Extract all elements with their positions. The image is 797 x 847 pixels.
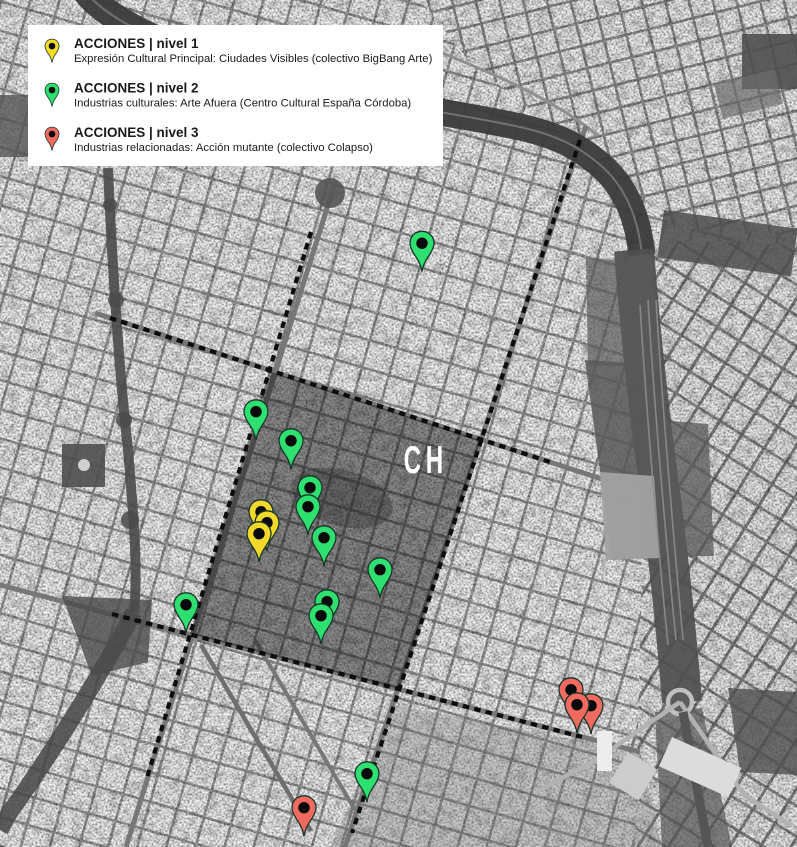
svg-text:ACCIONES | nivel 2: ACCIONES | nivel 2: [74, 81, 199, 96]
svg-text:CH: CH: [404, 438, 448, 481]
svg-text:ACCIONES | nivel 1: ACCIONES | nivel 1: [74, 36, 199, 51]
svg-text:Industrias relacionadas: Acció: Industrias relacionadas: Acción mutante …: [74, 142, 373, 154]
svg-text:Industrias culturales: Arte Af: Industrias culturales: Arte Afuera (Cent…: [74, 98, 411, 110]
svg-text:Expresión Cultural Principal:: Expresión Cultural Principal: Ciudades V…: [74, 53, 433, 65]
svg-text:ACCIONES | nivel 3: ACCIONES | nivel 3: [74, 125, 199, 140]
